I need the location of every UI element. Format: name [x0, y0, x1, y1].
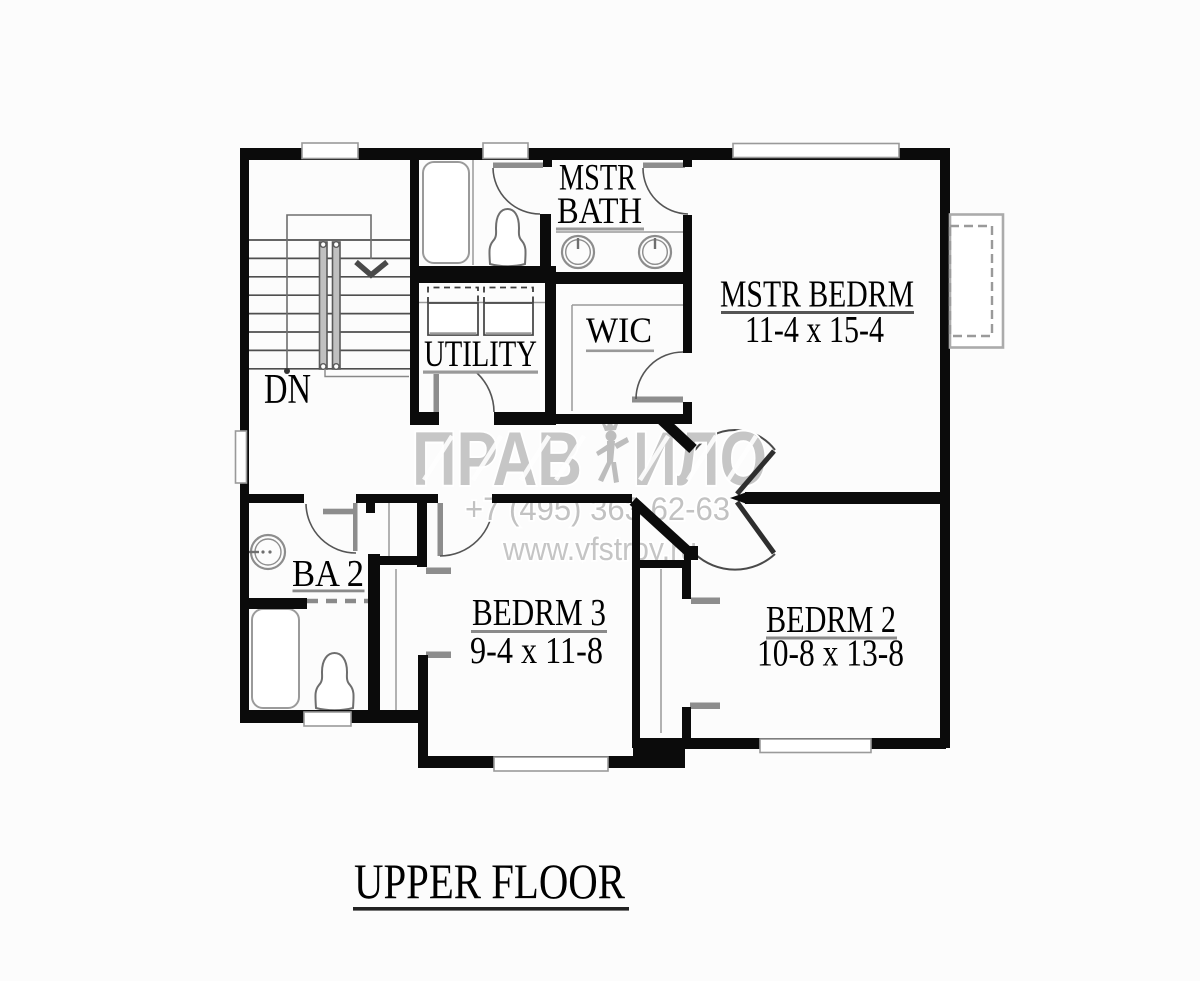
svg-text:UTILITY: UTILITY [424, 334, 537, 375]
svg-text:BEDRM 3: BEDRM 3 [472, 592, 606, 634]
svg-text:BA 2: BA 2 [292, 553, 364, 595]
svg-text:WIC: WIC [586, 310, 652, 350]
svg-text:UPPER FLOOR: UPPER FLOOR [354, 853, 626, 909]
svg-text:10-8 x 13-8: 10-8 x 13-8 [757, 633, 904, 675]
svg-text:BATH: BATH [557, 191, 642, 232]
svg-text:9-4 x 11-8: 9-4 x 11-8 [470, 630, 603, 672]
svg-text:11-4 x 15-4: 11-4 x 15-4 [745, 309, 884, 351]
svg-text:DN: DN [264, 367, 311, 413]
